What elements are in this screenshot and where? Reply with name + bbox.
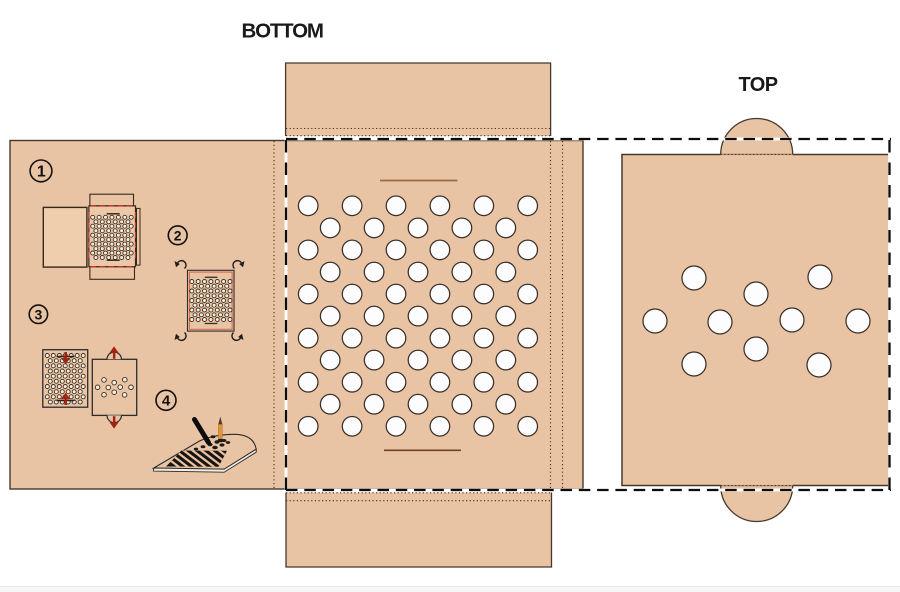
svg-text:4: 4 <box>162 393 171 410</box>
svg-text:BOTTOM: BOTTOM <box>242 19 323 42</box>
svg-text:2: 2 <box>174 227 182 243</box>
svg-text:1: 1 <box>37 164 46 181</box>
svg-text:3: 3 <box>35 306 43 322</box>
svg-text:TOP: TOP <box>739 74 778 96</box>
